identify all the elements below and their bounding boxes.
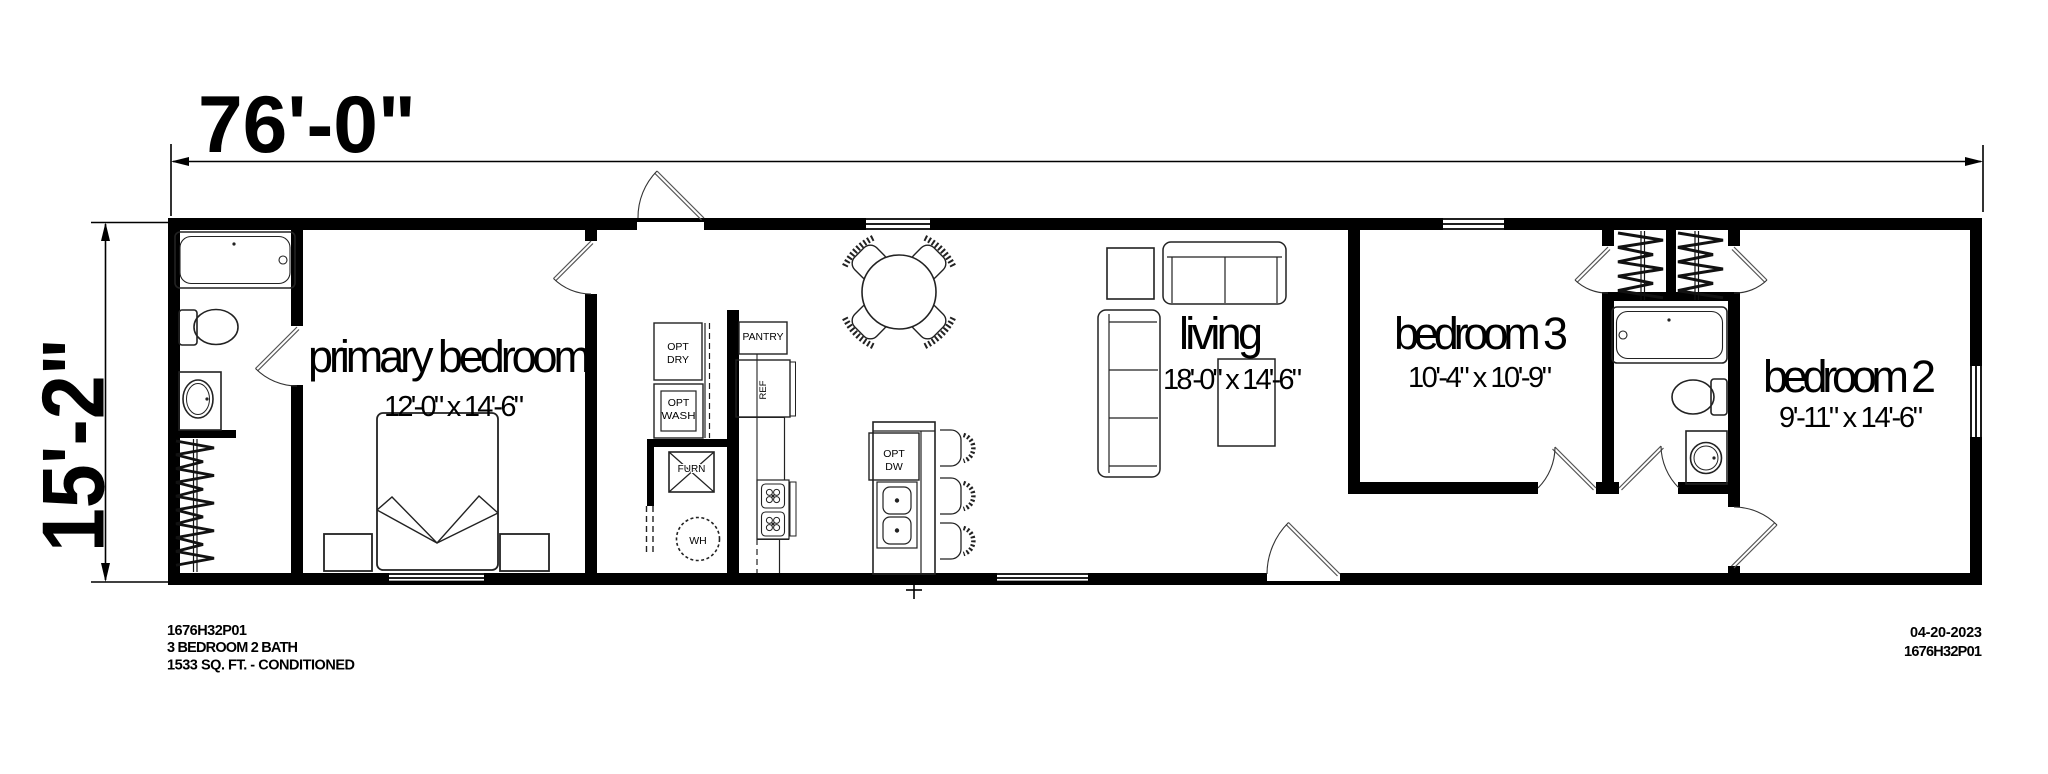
svg-text:3 BEDROOM 2 BATH: 3 BEDROOM 2 BATH <box>167 640 298 656</box>
svg-text:12'-0" x 14'-6": 12'-0" x 14'-6" <box>384 391 524 423</box>
svg-text:PANTRY: PANTRY <box>743 332 784 343</box>
svg-text:OPT: OPT <box>883 448 905 460</box>
svg-text:1533 SQ. FT. - CONDITIONED: 1533 SQ. FT. - CONDITIONED <box>167 658 355 674</box>
svg-text:1676H32P01: 1676H32P01 <box>1904 644 1982 660</box>
svg-text:04-20-2023: 04-20-2023 <box>1910 625 1982 641</box>
svg-text:primary bedroom: primary bedroom <box>308 331 591 382</box>
svg-text:living: living <box>1179 308 1263 359</box>
svg-text:bedroom 2: bedroom 2 <box>1763 351 1936 402</box>
svg-text:DW: DW <box>885 461 903 473</box>
svg-text:76'-0": 76'-0" <box>198 80 416 170</box>
svg-text:10'-4" x 10'-9": 10'-4" x 10'-9" <box>1408 362 1552 394</box>
svg-text:18'-0" x 14'-6": 18'-0" x 14'-6" <box>1163 364 1302 396</box>
svg-text:bedroom 3: bedroom 3 <box>1394 308 1568 359</box>
svg-text:REF: REF <box>758 380 769 399</box>
svg-text:9'-11" x 14'-6": 9'-11" x 14'-6" <box>1779 402 1923 434</box>
svg-text:WH: WH <box>689 535 707 547</box>
svg-text:OPT: OPT <box>667 341 689 353</box>
svg-text:OPT: OPT <box>668 397 690 409</box>
svg-text:WASH: WASH <box>662 410 696 422</box>
svg-text:1676H32P01: 1676H32P01 <box>167 623 247 639</box>
svg-text:DRY: DRY <box>667 354 689 366</box>
svg-text:FURN: FURN <box>678 464 706 475</box>
svg-text:15'-2": 15'-2" <box>24 338 123 552</box>
